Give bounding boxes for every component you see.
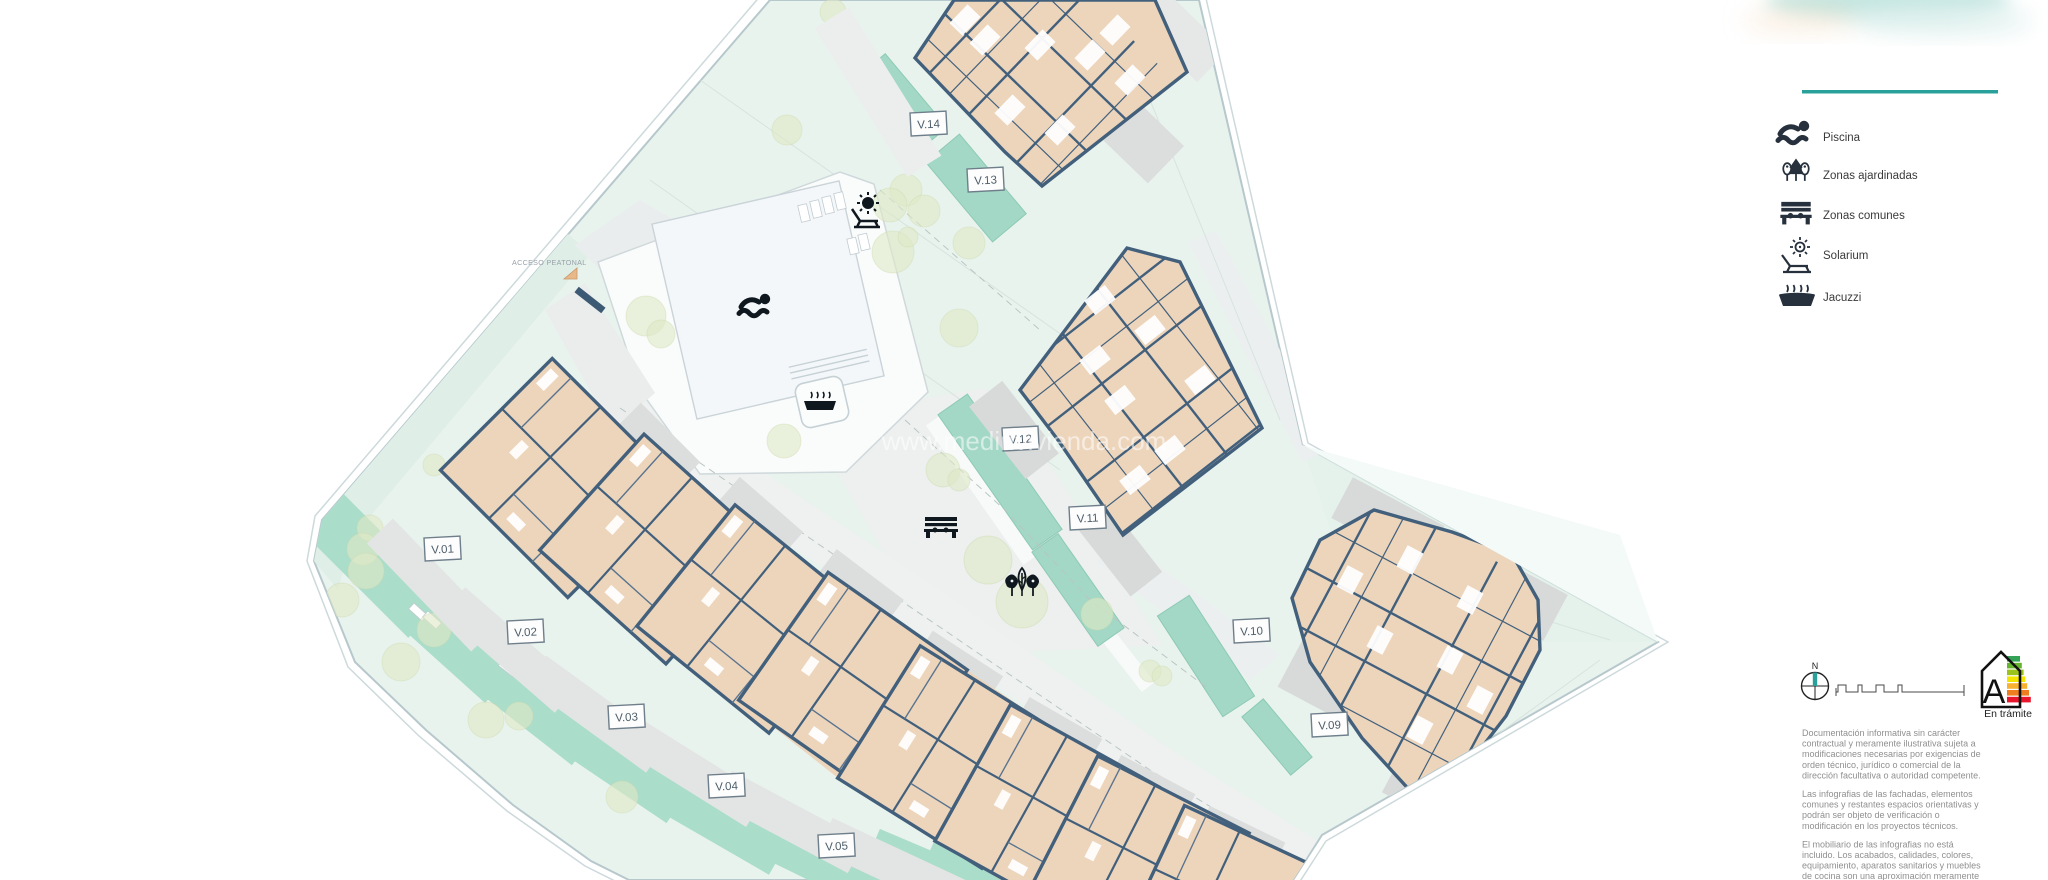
svg-text:El mobiliario de las infografi: El mobiliario de las infografias no está (1802, 839, 1954, 849)
svg-text:ACCESO PEATONAL: ACCESO PEATONAL (512, 258, 587, 267)
svg-text:www.medinvivienda.com: www.medinvivienda.com (881, 426, 1167, 456)
svg-text:equipamiento, aparatos sanitar: equipamiento, aparatos sanitarios y mueb… (1802, 861, 1981, 871)
svg-text:dirección facultativa o autori: dirección facultativa o autoridad compet… (1802, 770, 1981, 780)
svg-text:modificaciones necesarias por: modificaciones necesarias por exigencias… (1802, 749, 1981, 759)
svg-text:Documentación informativa sin: Documentación informativa sin carácter (1802, 728, 1960, 738)
svg-text:V.05: V.05 (825, 840, 848, 853)
svg-text:Zonas ajardinadas: Zonas ajardinadas (1823, 170, 1918, 182)
svg-text:V.11: V.11 (1076, 512, 1098, 525)
svg-text:Zonas comunes: Zonas comunes (1823, 210, 1905, 222)
svg-text:V.13: V.13 (974, 174, 997, 187)
svg-text:Las infografias de las fachada: Las infografias de las fachadas, element… (1802, 789, 1973, 799)
svg-text:podrán ser objeto de verificac: podrán ser objeto de verificación o (1802, 810, 1940, 820)
svg-text:comunes y restantes espacios o: comunes y restantes espacios orientativa… (1802, 800, 1979, 810)
svg-text:Piscina: Piscina (1823, 132, 1861, 144)
svg-text:V.14: V.14 (917, 118, 941, 131)
svg-text:N: N (1812, 661, 1819, 671)
svg-text:V.03: V.03 (615, 711, 638, 724)
svg-text:V.04: V.04 (715, 780, 739, 793)
svg-text:V.09: V.09 (1318, 719, 1341, 732)
svg-text:modificación en los proyectos: modificación en los proyectos técnicos. (1802, 821, 1958, 831)
svg-text:V.01: V.01 (431, 543, 454, 556)
svg-text:orden técnico, jurídico o come: orden técnico, jurídico o comercial de l… (1802, 760, 1961, 770)
svg-text:Solarium: Solarium (1823, 250, 1868, 262)
svg-text:A: A (1983, 673, 2006, 711)
svg-text:V.10: V.10 (1240, 625, 1263, 638)
svg-text:Jacuzzi: Jacuzzi (1823, 292, 1861, 304)
svg-text:incluido. Los acabados, calida: incluido. Los acabados, calidades, color… (1802, 850, 1973, 860)
svg-text:En trámite: En trámite (1984, 708, 2032, 720)
svg-text:de cocina son una aproximación: de cocina son una aproximación meramente (1802, 871, 1979, 880)
svg-text:V.02: V.02 (514, 626, 537, 639)
svg-text:contractual y meramente ilustr: contractual y meramente ilustrativa suje… (1802, 739, 1976, 749)
